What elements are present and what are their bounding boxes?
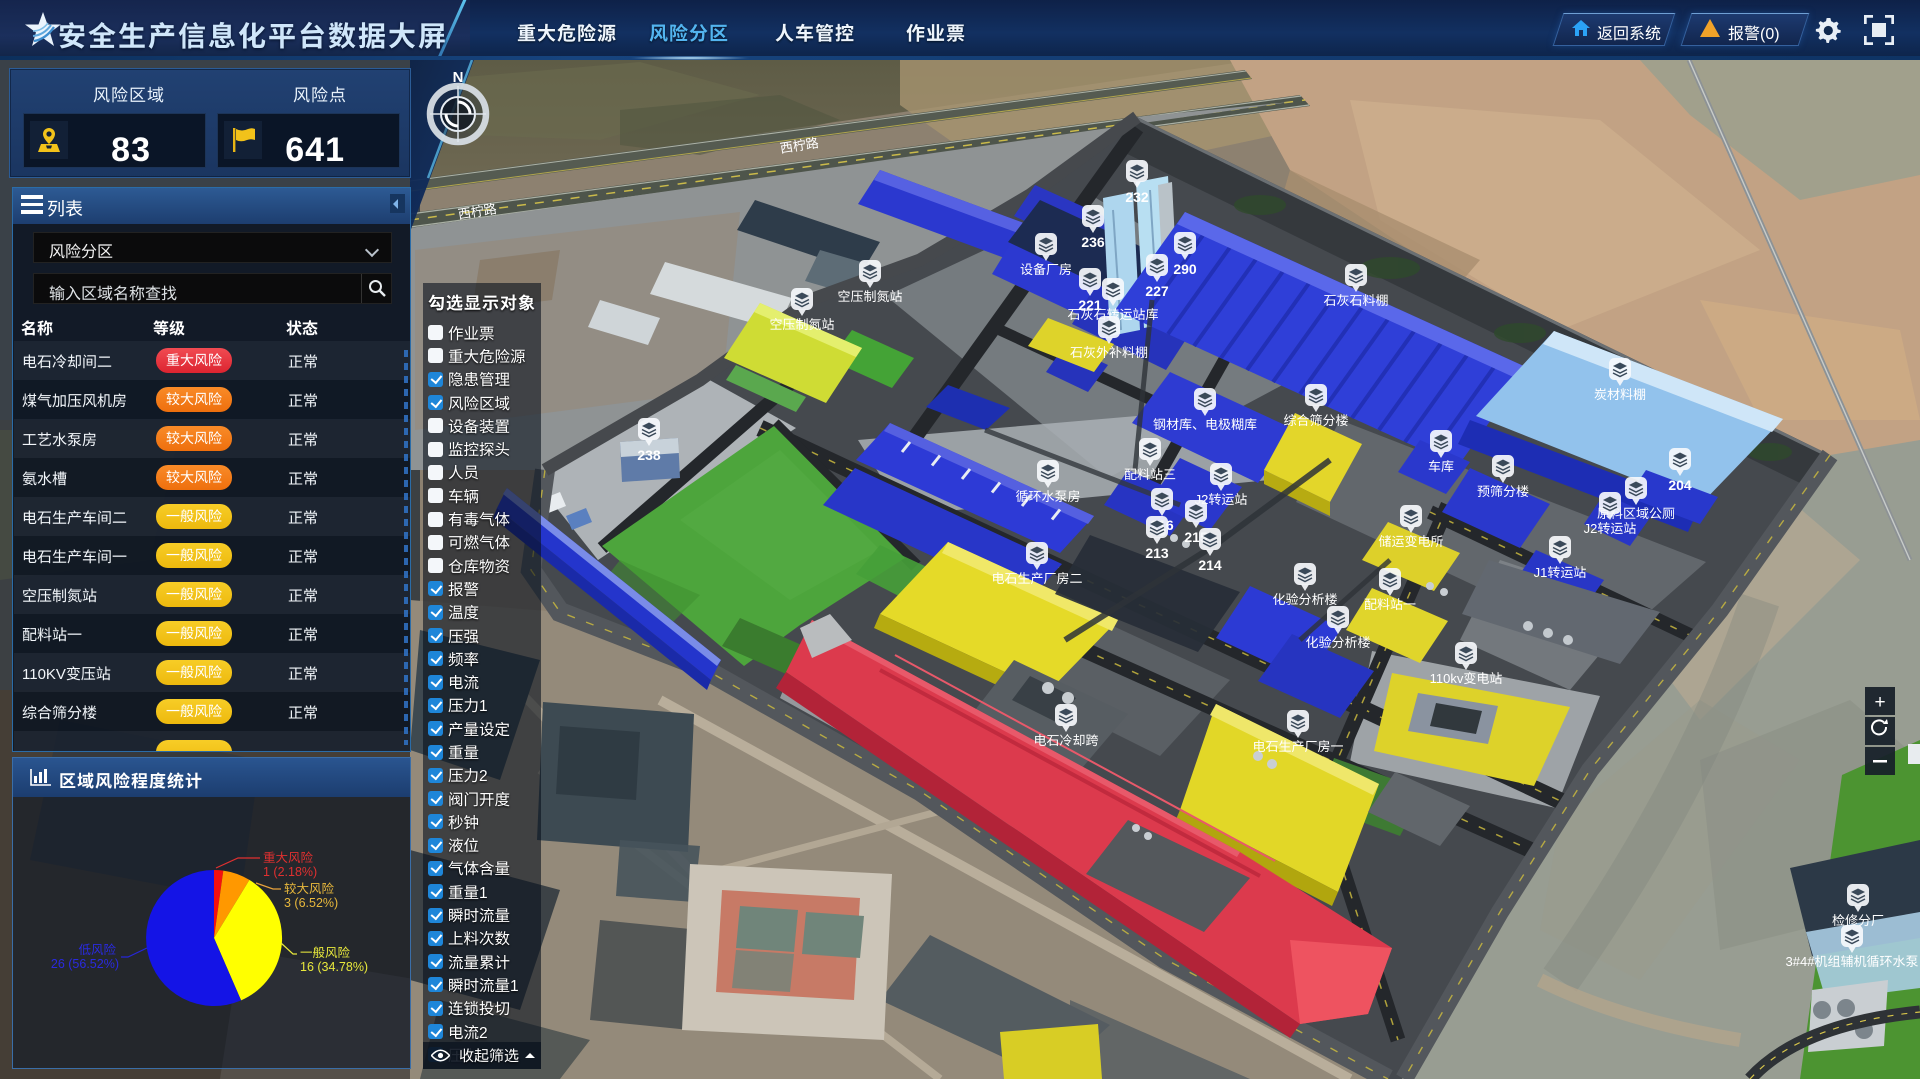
svg-text:214: 214 — [1198, 555, 1222, 575]
svg-text:钢材库、电极糊库: 钢材库、电极糊库 — [1153, 414, 1257, 433]
svg-text:电石生产厂房一: 电石生产厂房一 — [1252, 736, 1343, 755]
svg-text:化验分析楼: 化验分析楼 — [1272, 589, 1337, 608]
svg-text:空压制氮站: 空压制氮站 — [837, 286, 902, 305]
svg-text:110kv变电站: 110kv变电站 — [1430, 668, 1503, 687]
svg-text:3#4#机组辅机循环水泵: 3#4#机组辅机循环水泵 — [1786, 951, 1919, 970]
svg-text:16 (34.78%): 16 (34.78%) — [300, 956, 368, 975]
svg-text:236: 236 — [1081, 232, 1105, 252]
svg-text:石灰外补料棚: 石灰外补料棚 — [1070, 342, 1148, 361]
svg-text:J1转运站: J1转运站 — [1534, 562, 1587, 581]
svg-text:213: 213 — [1145, 543, 1169, 563]
svg-text:循环水泵房: 循环水泵房 — [1015, 486, 1080, 505]
svg-text:配料站一: 配料站一 — [1364, 594, 1416, 613]
svg-text:预筛分楼: 预筛分楼 — [1477, 481, 1529, 500]
svg-text:配料站三: 配料站三 — [1124, 464, 1176, 483]
svg-text:炭材料棚: 炭材料棚 — [1594, 384, 1646, 403]
svg-text:3 (6.52%): 3 (6.52%) — [284, 892, 338, 911]
svg-text:石灰石料棚: 石灰石料棚 — [1323, 290, 1388, 309]
svg-text:+: + — [1874, 687, 1885, 714]
svg-text:232: 232 — [1125, 187, 1149, 207]
svg-text:车库: 车库 — [1428, 456, 1454, 475]
svg-text:221: 221 — [1078, 295, 1102, 315]
svg-text:J2转运站: J2转运站 — [1584, 518, 1637, 537]
svg-text:化验分析楼: 化验分析楼 — [1305, 632, 1370, 651]
svg-text:204: 204 — [1668, 475, 1692, 495]
svg-text:储运变电所: 储运变电所 — [1378, 531, 1443, 550]
svg-text:227: 227 — [1145, 281, 1169, 301]
svg-text:26 (56.52%): 26 (56.52%) — [51, 953, 119, 972]
svg-text:238: 238 — [637, 445, 661, 465]
svg-text:空压制氮站: 空压制氮站 — [769, 314, 834, 333]
svg-text:290: 290 — [1173, 259, 1197, 279]
svg-text:电石冷却跨: 电石冷却跨 — [1033, 730, 1098, 749]
svg-text:电石生产厂房二: 电石生产厂房二 — [991, 568, 1082, 587]
svg-text:综合筛分楼: 综合筛分楼 — [1283, 410, 1348, 429]
svg-text:设备厂房: 设备厂房 — [1020, 259, 1072, 278]
